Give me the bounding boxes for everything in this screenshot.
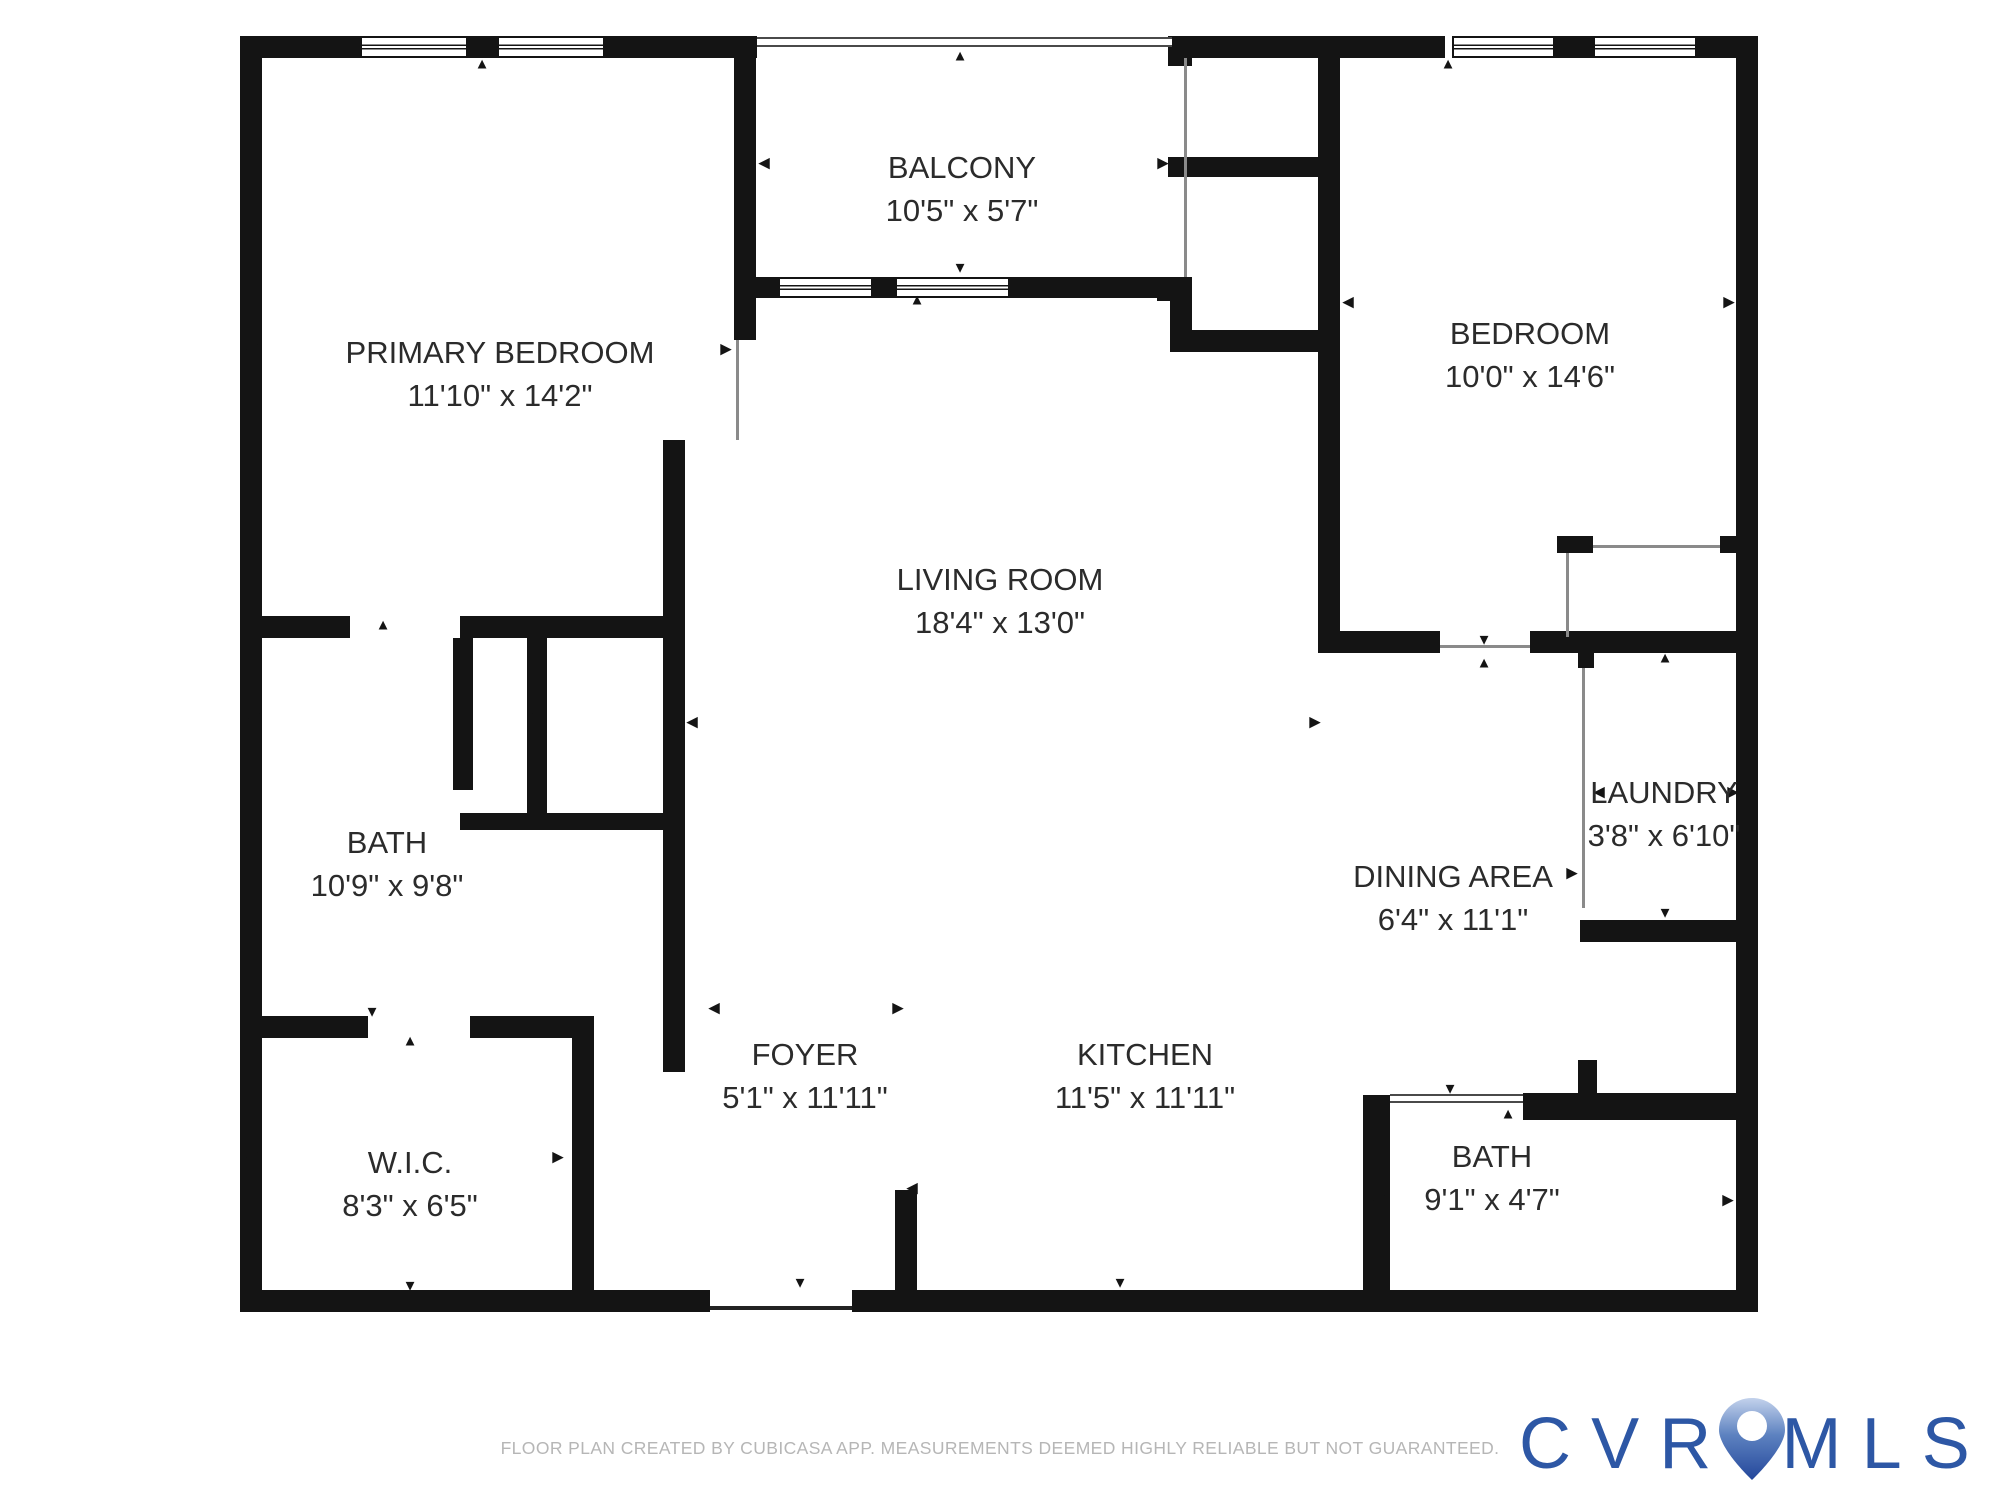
dimension-arrow: ▼ — [1443, 1082, 1458, 1097]
door-line — [1593, 545, 1720, 548]
dimension-arrow: ▼ — [403, 1279, 418, 1294]
room-dimensions: 10'9" x 9'8" — [311, 864, 464, 907]
cvrmls-logo: CVR MLS — [1519, 1396, 1990, 1480]
dimension-arrow: ▲ — [1658, 651, 1673, 666]
dimension-arrow: ▶ — [720, 342, 732, 357]
window-symbol — [360, 36, 468, 58]
wall-segment — [1736, 36, 1758, 1312]
dimension-arrow: ▲ — [376, 618, 391, 633]
room-dimensions: 11'5" x 11'11" — [1055, 1076, 1235, 1119]
dimension-arrow: ▼ — [793, 1276, 808, 1291]
door-line — [1566, 553, 1569, 637]
wall-segment — [734, 277, 778, 298]
dimension-arrow: ◀ — [686, 715, 698, 730]
room-name: BEDROOM — [1445, 312, 1615, 355]
wall-segment — [527, 638, 547, 820]
window-symbol — [778, 277, 873, 298]
room-name: PRIMARY BEDROOM — [346, 331, 655, 374]
door-line — [1582, 668, 1585, 908]
wall-segment — [1170, 330, 1318, 352]
room-name: BATH — [1424, 1135, 1560, 1178]
room-label-bath: BATH10'9" x 9'8" — [311, 821, 464, 907]
dimension-arrow: ◀ — [906, 1181, 918, 1196]
room-label-bedroom: BEDROOM10'0" x 14'6" — [1445, 312, 1615, 398]
wall-segment — [663, 440, 685, 1072]
wall-segment — [240, 1290, 710, 1312]
wall-segment — [240, 36, 360, 58]
dimension-arrow: ◀ — [248, 711, 260, 726]
dimension-arrow: ▶ — [1309, 715, 1321, 730]
dimension-arrow: ▶ — [532, 711, 544, 726]
dimension-arrow: ▲ — [1477, 656, 1492, 671]
dimension-arrow: ▶ — [552, 1150, 564, 1165]
wall-segment — [453, 638, 473, 790]
dimension-arrow: ◀ — [758, 156, 770, 171]
wall-segment — [240, 616, 350, 638]
dimension-arrow: ▶ — [1157, 156, 1169, 171]
dimension-arrow: ▼ — [1658, 906, 1673, 921]
door-line — [710, 1306, 852, 1310]
wall-segment — [852, 1290, 1758, 1312]
window-symbol — [1593, 36, 1697, 58]
wall-segment — [1318, 36, 1340, 653]
wall-segment — [460, 616, 685, 638]
dimension-arrow: ▲ — [1501, 1107, 1516, 1122]
room-dimensions: 9'1" x 4'7" — [1424, 1178, 1560, 1221]
wall-segment — [1340, 631, 1440, 653]
dimension-arrow: ▲ — [1441, 57, 1456, 72]
door-line — [1184, 58, 1187, 277]
room-name: BATH — [311, 821, 464, 864]
room-name: BALCONY — [886, 146, 1039, 189]
wall-segment — [1172, 36, 1445, 58]
room-label-balcony: BALCONY10'5" x 5'7" — [886, 146, 1039, 232]
room-dimensions: 11'10" x 14'2" — [346, 374, 655, 417]
wall-segment — [1557, 536, 1593, 553]
wall-segment — [240, 36, 262, 1312]
room-name: W.I.C. — [342, 1141, 478, 1184]
wall-segment — [895, 1190, 917, 1290]
dimension-arrow: ▶ — [1723, 295, 1735, 310]
wall-segment — [1578, 653, 1594, 668]
wall-segment — [572, 1016, 594, 1290]
dimension-arrow: ◀ — [246, 342, 258, 357]
room-dimensions: 3'8" x 6'10" — [1588, 814, 1741, 857]
dimension-arrow: ▶ — [1566, 866, 1578, 881]
dimension-arrow: ▶ — [892, 1001, 904, 1016]
room-dimensions: 10'5" x 5'7" — [886, 189, 1039, 232]
room-label-bath-2: BATH9'1" x 4'7" — [1424, 1135, 1560, 1221]
wall-segment — [1720, 536, 1737, 553]
dimension-arrow: ◀ — [1373, 1193, 1385, 1208]
logo-text-mls: MLS — [1781, 1408, 1990, 1480]
wall-segment — [1580, 920, 1758, 942]
wall-segment — [262, 1016, 368, 1038]
dimension-arrow: ◀ — [708, 1001, 720, 1016]
wall-segment — [1157, 277, 1192, 301]
room-dimensions: 5'1" x 11'11" — [722, 1076, 887, 1119]
dimension-arrow: ▼ — [1113, 1276, 1128, 1291]
window-symbol — [1452, 36, 1555, 58]
dimension-arrow: ▶ — [1722, 1193, 1734, 1208]
room-label-foyer: FOYER5'1" x 11'11" — [722, 1033, 887, 1119]
room-name: LIVING ROOM — [897, 558, 1104, 601]
room-dimensions: 18'4" x 13'0" — [897, 601, 1104, 644]
dimension-arrow: ◀ — [246, 1150, 258, 1165]
room-name: KITCHEN — [1055, 1033, 1235, 1076]
room-label-wic: W.I.C.8'3" x 6'5" — [342, 1141, 478, 1227]
wall-segment — [1530, 631, 1736, 653]
dimension-arrow: ▲ — [475, 57, 490, 72]
floor-plan-canvas: ◀▶▲◀▶▲▼▲◀▶▲▼▲▲◀▶◀▶▼▲◀▶▼◀▶◀▼▼▶◀▶▲▼▼▲◀▶PRI… — [0, 0, 2000, 1500]
door-opening-line — [757, 37, 1172, 47]
dimension-arrow: ▼ — [365, 1005, 380, 1020]
room-dimensions: 8'3" x 6'5" — [342, 1184, 478, 1227]
room-label-kitchen: KITCHEN11'5" x 11'11" — [1055, 1033, 1235, 1119]
room-name: DINING AREA — [1353, 855, 1553, 898]
wall-segment — [460, 813, 663, 830]
map-pin-icon — [1717, 1396, 1787, 1482]
room-name: FOYER — [722, 1033, 887, 1076]
dimension-arrow: ▲ — [910, 293, 925, 308]
door-line — [736, 340, 739, 440]
dimension-arrow: ◀ — [1342, 295, 1354, 310]
dimension-arrow: ▲ — [403, 1034, 418, 1049]
room-name: LAUNDRY — [1588, 771, 1741, 814]
wall-segment — [1578, 1060, 1597, 1095]
dimension-arrow: ▼ — [953, 261, 968, 276]
room-label-laundry: LAUNDRY3'8" x 6'10" — [1588, 771, 1741, 857]
wall-segment — [873, 277, 895, 298]
logo-text-cvr: CVR — [1519, 1408, 1732, 1480]
room-label-living-room: LIVING ROOM18'4" x 13'0" — [897, 558, 1104, 644]
wall-segment — [1555, 36, 1593, 58]
wall-segment — [1168, 157, 1318, 177]
floor-plan-page: ◀▶▲◀▶▲▼▲◀▶▲▼▲▲◀▶◀▶▼▲◀▶▼◀▶◀▼▼▶◀▶▲▼▼▲◀▶PRI… — [0, 0, 2000, 1500]
wall-segment — [1523, 1093, 1736, 1120]
room-dimensions: 10'0" x 14'6" — [1445, 355, 1615, 398]
room-label-primary-bedroom: PRIMARY BEDROOM11'10" x 14'2" — [346, 331, 655, 417]
dimension-arrow: ▼ — [1477, 633, 1492, 648]
dimension-arrow: ▲ — [953, 49, 968, 64]
room-dimensions: 6'4" x 11'1" — [1353, 898, 1553, 941]
room-label-dining-area: DINING AREA6'4" x 11'1" — [1353, 855, 1553, 941]
window-symbol — [497, 36, 605, 58]
